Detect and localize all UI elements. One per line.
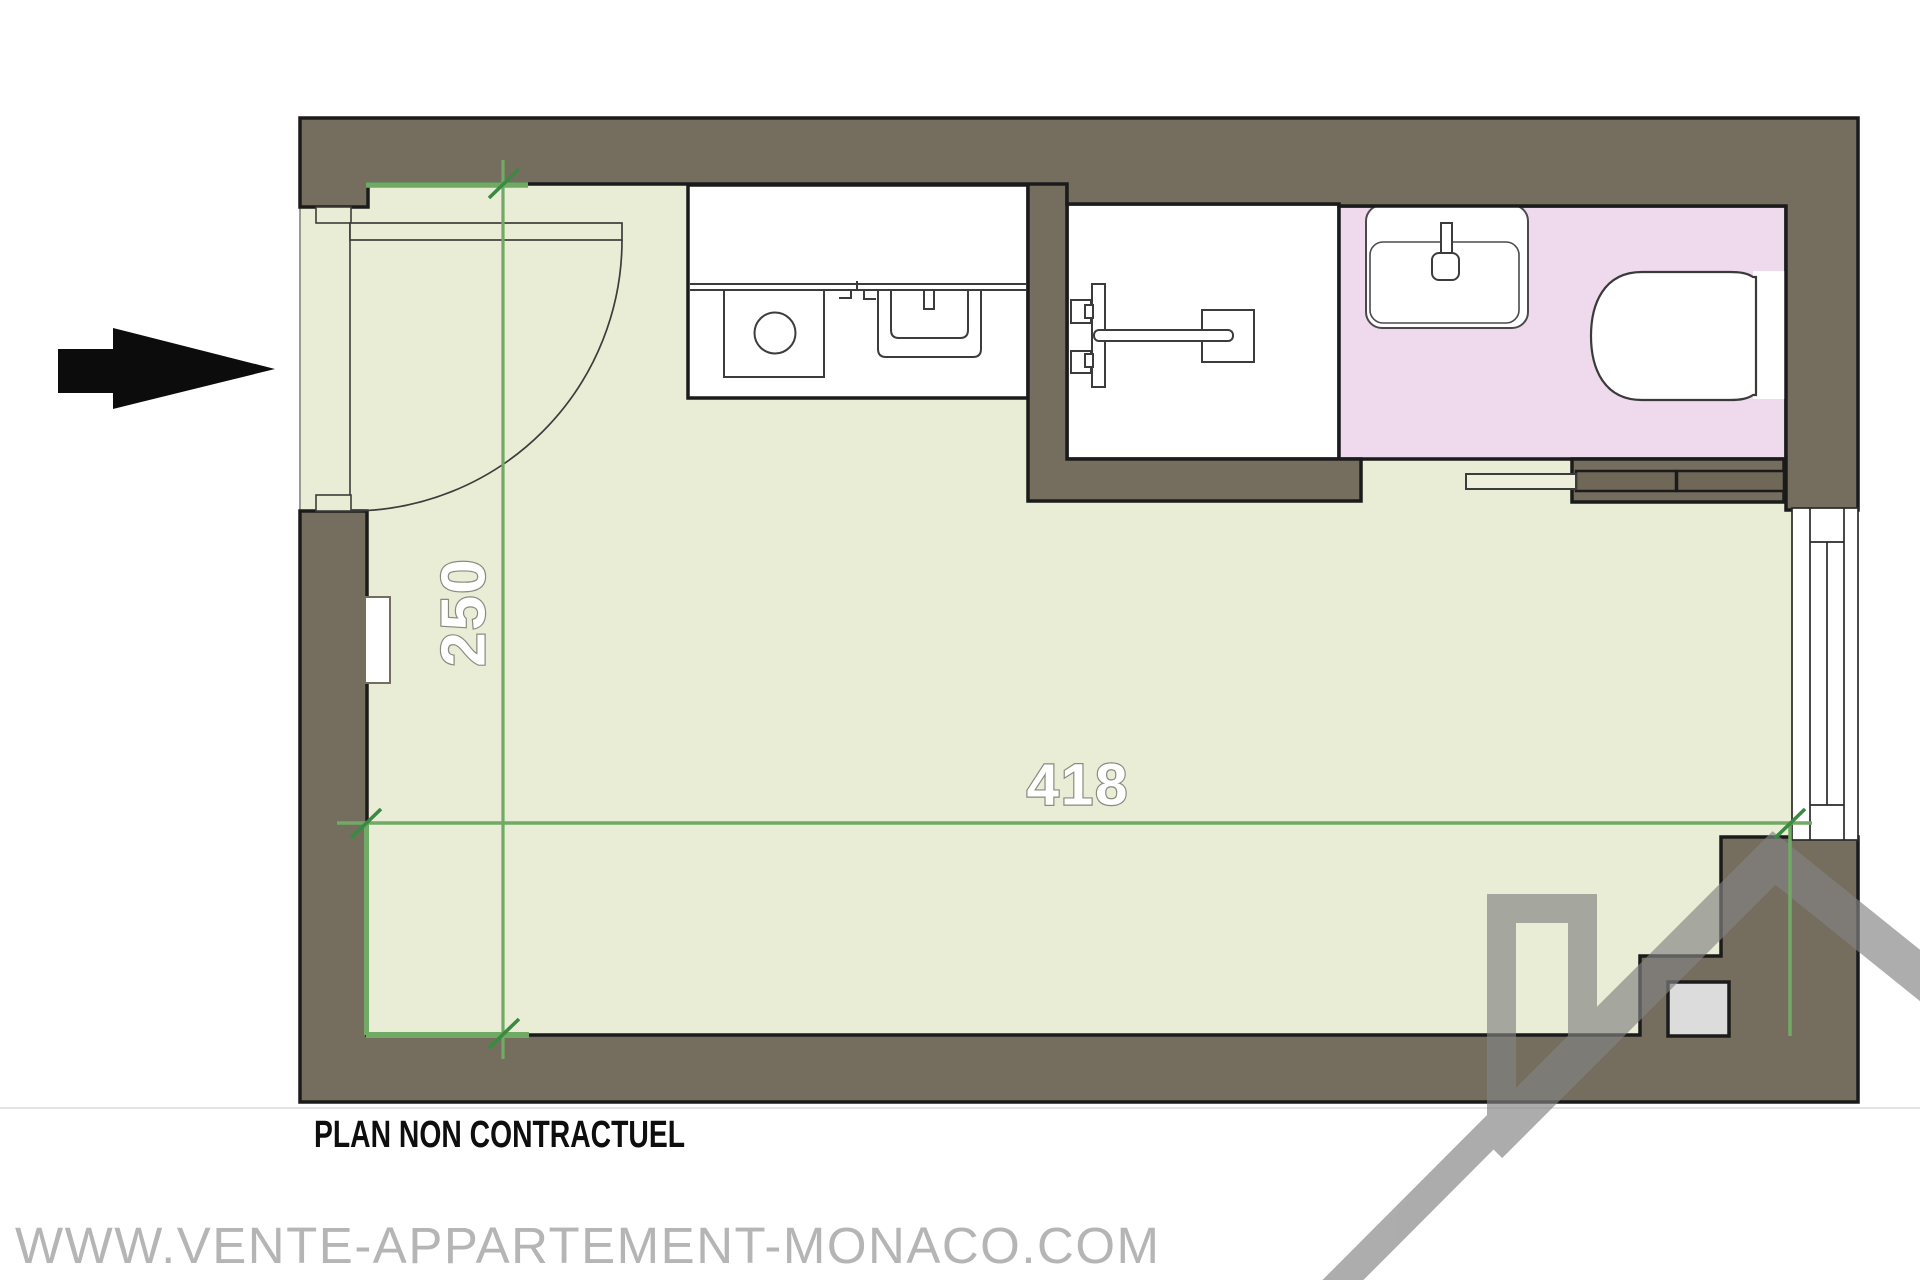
svg-text:PLAN NON CONTRACTUEL: PLAN NON CONTRACTUEL [314,1114,685,1156]
svg-text:250: 250 [430,557,499,666]
svg-text:418: 418 [1027,753,1130,818]
svg-text:WWW.VENTE-APPARTEMENT-MONACO.C: WWW.VENTE-APPARTEMENT-MONACO.COM [15,1217,1159,1274]
